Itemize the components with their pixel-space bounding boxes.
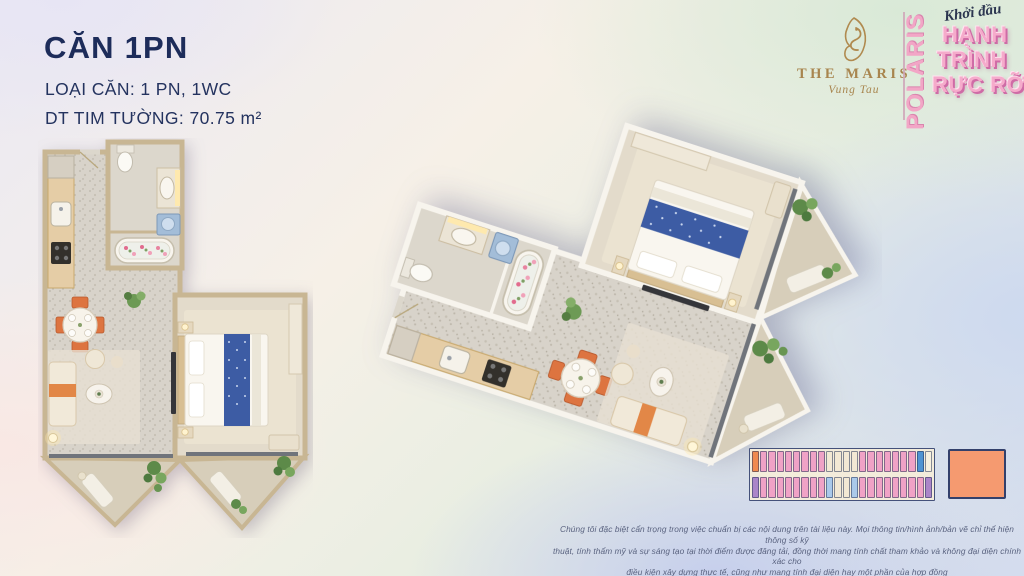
campaign-line-3: RỰC RỠ	[932, 72, 1024, 97]
key-plan-legend-swatch	[948, 449, 1006, 499]
campaign-tagline: Khởi đầu HẠNH TRÌNH RỰC RỠ	[932, 4, 1024, 97]
floor-plan-3d	[358, 64, 882, 488]
disclaimer: Chúng tôi đặc biệt cẩn trọng trong việc …	[552, 524, 1022, 576]
floor-plan-2d	[38, 138, 313, 538]
campaign-line-2: TRÌNH	[937, 47, 1024, 72]
unit-type-line: LOẠI CĂN: 1 PN, 1WC	[45, 79, 232, 100]
disclaimer-line-3: điều kiện xây dựng thực tế, cũng như man…	[552, 567, 1022, 576]
campaign-polaris-vertical: POLARIS	[902, 8, 930, 130]
disclaimer-line-1: Chúng tôi đặc biệt cẩn trọng trong việc …	[552, 524, 1022, 546]
seahorse-icon	[836, 16, 872, 64]
unit-title: CĂN 1PN	[44, 30, 188, 66]
campaign-line-1: HẠNH	[942, 22, 1024, 47]
disclaimer-line-2: thuật, tính thẩm mỹ và sự sáng tạo tại t…	[552, 546, 1022, 568]
unit-area-line: DT TIM TƯỜNG: 70.75 m²	[45, 108, 262, 129]
key-plan	[749, 448, 935, 501]
brochure-page: CĂN 1PN LOẠI CĂN: 1 PN, 1WC DT TIM TƯỜNG…	[0, 0, 1024, 576]
